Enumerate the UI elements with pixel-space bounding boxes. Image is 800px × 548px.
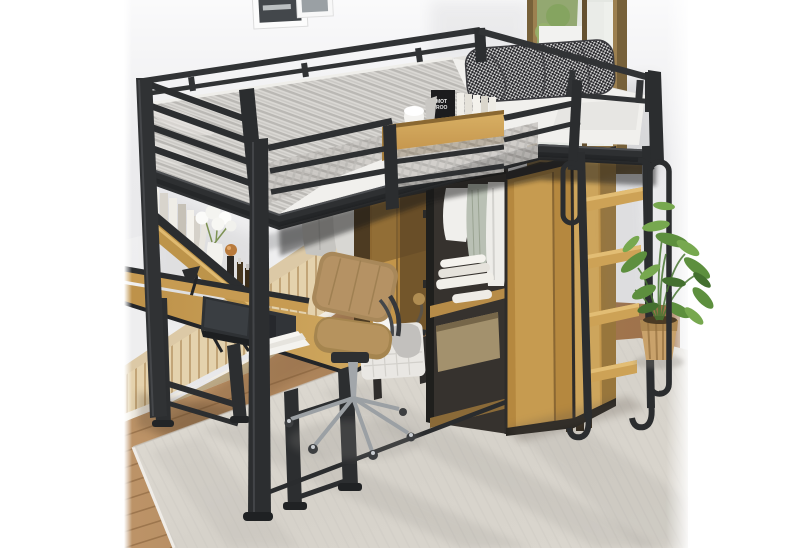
svg-text:ROO: ROO <box>436 105 448 111</box>
